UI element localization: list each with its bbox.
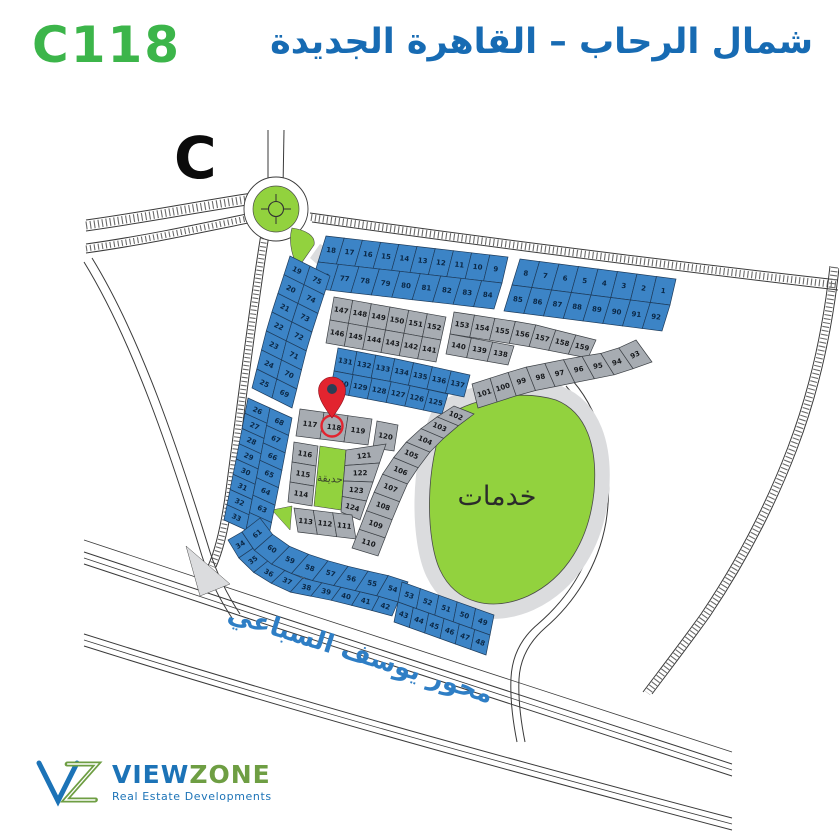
sector-letter: C (174, 124, 217, 192)
logo-name-view: VIEW (112, 760, 189, 789)
plot-number-83: 83 (462, 288, 473, 297)
plot-number-92: 92 (651, 313, 662, 322)
plot-number-12: 12 (436, 258, 447, 267)
plot-number-82: 82 (442, 286, 453, 295)
garden-label: حديقة (317, 472, 344, 486)
small-green-triangle (272, 506, 292, 530)
plot-number-84: 84 (482, 291, 493, 300)
plot-number-91: 91 (631, 310, 642, 319)
plot-number-18: 18 (326, 246, 337, 255)
plot-number-79: 79 (380, 279, 391, 288)
plot-number-96: 96 (573, 365, 584, 375)
plot-number-80: 80 (401, 281, 412, 290)
plot-number-11: 11 (454, 261, 465, 270)
plot-number-85: 85 (513, 295, 524, 304)
plot-number-88: 88 (572, 303, 583, 312)
plot-number-10: 10 (472, 263, 483, 272)
plot-number-86: 86 (532, 298, 543, 307)
services-label: خدمات (458, 481, 537, 512)
flyer-page: C118 شمال الرحاب – القاهرة الجديدة (0, 0, 839, 839)
logo-tagline: Real Estate Developments (112, 791, 272, 803)
plot-number-87: 87 (552, 300, 563, 309)
plot-number-14: 14 (399, 254, 410, 263)
plot-number-16: 16 (362, 250, 373, 259)
plot-number-77: 77 (339, 274, 350, 283)
plot-number-13: 13 (417, 256, 428, 265)
company-logo: VIEWZONE Real Estate Developments (34, 756, 272, 808)
pin-hole (327, 384, 337, 394)
plot-number-121: 121 (356, 451, 372, 461)
plot-number-78: 78 (360, 277, 371, 286)
plot-number-89: 89 (592, 305, 603, 314)
master-plan-map: 1817161514131211109767778798081828384876… (0, 0, 839, 839)
plot-number-90: 90 (611, 308, 622, 317)
logo-mark (34, 756, 106, 808)
logo-name-zone: ZONE (189, 760, 270, 789)
plot-strip-central-left: 116115114 (288, 442, 318, 506)
plot-number-123: 123 (349, 486, 364, 495)
logo-name: VIEWZONE (112, 762, 272, 788)
plot-number-95: 95 (593, 361, 604, 370)
plot-number-122: 122 (353, 469, 368, 477)
plot-number-15: 15 (381, 252, 392, 261)
plot-number-17: 17 (344, 248, 355, 257)
roundabout-green (253, 186, 299, 232)
plot-number-81: 81 (421, 284, 432, 293)
